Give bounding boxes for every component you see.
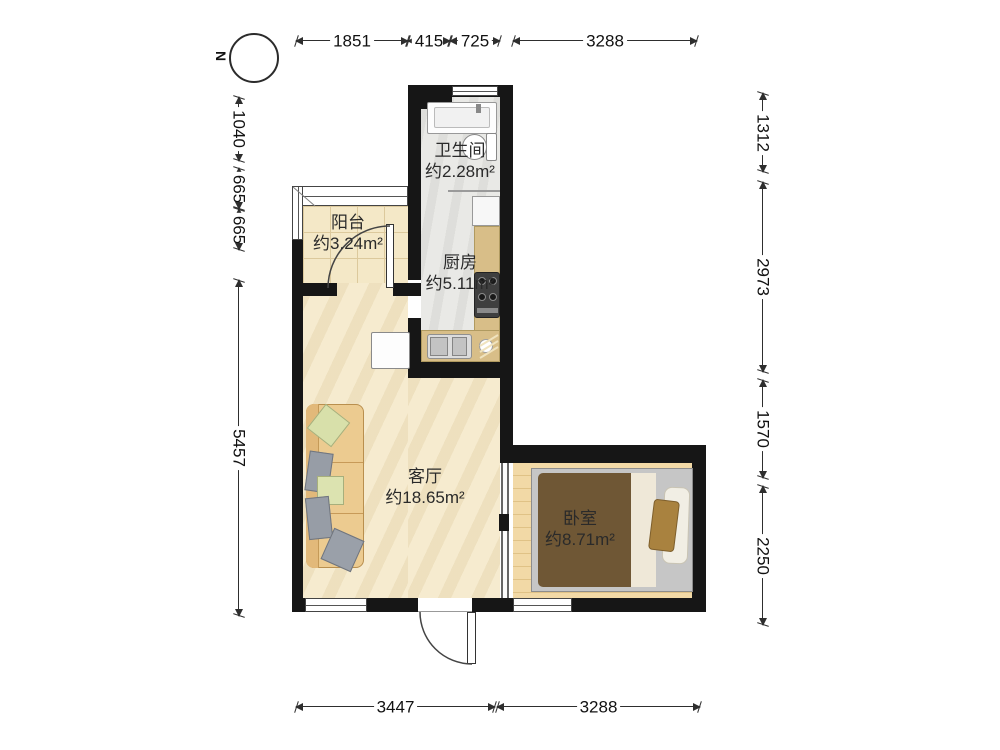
bathroom-label: 卫生间 约2.28m² [410,140,510,182]
bathroom-kitchen-divider [448,190,500,192]
living-room-area: 约18.65m² [365,487,485,508]
floorplan-canvas: N 卫生间 约2.28m² 厨房 约5.11m² 阳台 约3.24m² 客厅 约… [0,0,1000,750]
dim-top-3-value: 725 [458,33,492,50]
living-room-window [305,598,367,612]
dim-top-4-value: 3288 [583,33,627,50]
dim-bottom-2: 3288 [497,706,700,707]
dim-bottom-2-value: 3288 [577,699,621,716]
kitchen-sink-basin-left [430,337,448,356]
kitchen-name: 厨房 [412,252,508,273]
stove-handle [477,308,498,313]
dim-right-2-value: 2973 [755,255,772,299]
bedroom-bottom-wall [572,598,706,612]
dim-right-4: 2250 [762,486,763,625]
dim-right-1: 1312 [762,93,763,172]
dim-top-2-value: 415 [412,33,446,50]
dim-left-3: 665 [238,209,239,250]
kitchen-hob-pot [479,339,493,353]
bathroom-area: 约2.28m² [410,161,510,182]
living-room-label: 客厅 约18.65m² [365,466,485,508]
dim-top-2: 415 [408,40,450,41]
bedroom-area: 约8.71m² [530,529,630,550]
right-outer-wall [692,445,706,612]
bedroom-label: 卧室 约8.71m² [530,508,630,550]
bedroom-top-wall [500,445,706,463]
bottom-wall-corner [292,598,305,612]
entrance-opening [418,598,472,612]
appliance-box [371,332,410,369]
dim-left-1-value: 1040 [231,107,248,151]
dim-left-1: 1040 [238,97,239,161]
compass-circle [229,33,279,83]
dim-bottom-1: 3447 [296,706,495,707]
bathroom-faucet [476,104,481,113]
bottom-wall-right-of-door [472,598,513,612]
entrance-door-swing-arc [420,612,472,664]
bedroom-partition-stop [499,514,509,531]
bottom-wall-mid [367,598,418,612]
bathroom-window [452,86,498,96]
dim-left-4-value: 5457 [231,426,248,470]
kitchen-label: 厨房 约5.11m² [412,252,508,294]
stove-burner-3 [478,293,486,301]
dim-right-4-value: 2250 [755,534,772,578]
bathroom-name: 卫生间 [410,140,510,161]
bathroom-sink-basin [434,107,490,128]
dim-left-2-value: 665 [231,171,248,205]
balcony-area: 约3.24m² [300,233,396,254]
balcony-label: 阳台 约3.24m² [300,212,396,254]
compass-north-label: N [213,51,229,61]
dim-right-3-value: 1570 [755,407,772,451]
kitchen-sink-basin-right [452,337,467,356]
dim-top-1-value: 1851 [330,33,374,50]
entrance-door-leaf [467,612,476,664]
balcony-name: 阳台 [300,212,396,233]
living-room-name: 客厅 [365,466,485,487]
kitchen-area: 约5.11m² [412,273,508,294]
kitchen-bottom-wall [408,362,513,378]
dim-top-3: 725 [450,40,500,41]
dim-top-4: 3288 [513,40,697,41]
bedroom-name: 卧室 [530,508,630,529]
dim-bottom-1-value: 3447 [374,699,418,716]
dim-right-2: 2973 [762,182,763,372]
bedroom-window [513,598,572,612]
dim-left-3-value: 665 [231,212,248,246]
dim-top-1: 1851 [296,40,408,41]
left-outer-wall [292,240,303,612]
dim-right-3: 1570 [762,380,763,478]
dim-right-1-value: 1312 [755,111,772,155]
balcony-divider-wall-left [303,283,337,296]
stove-burner-4 [489,293,497,301]
kitchen-fridge [472,196,500,226]
dim-left-2: 665 [238,168,239,209]
dim-left-4: 5457 [238,280,239,616]
sofa-pillow-gray-2 [305,496,333,540]
balcony-window-band [292,186,408,206]
